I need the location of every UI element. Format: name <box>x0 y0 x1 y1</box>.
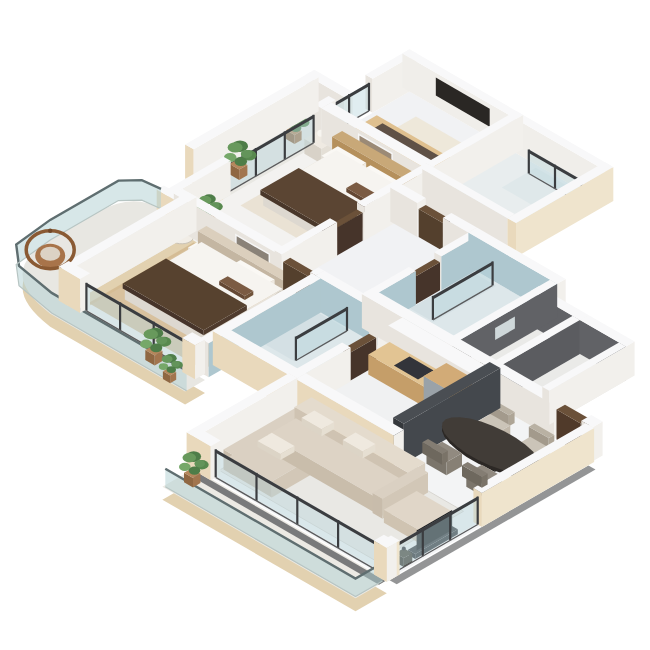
wall-living-south-b <box>374 535 397 582</box>
floorplan-stage <box>0 0 650 650</box>
wall-master-south-b <box>182 332 205 379</box>
apartment-3d-floor-plan <box>0 0 650 650</box>
